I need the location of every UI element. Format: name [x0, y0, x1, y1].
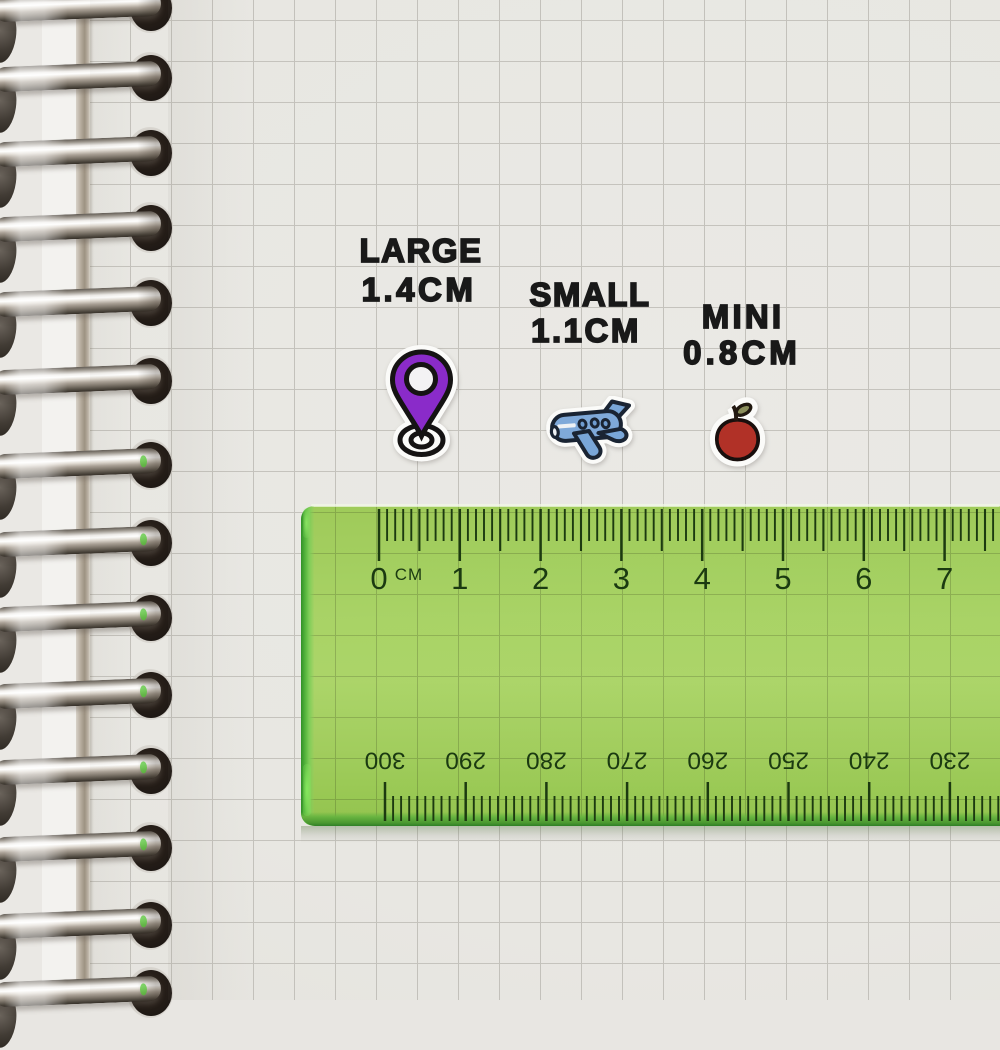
svg-text:1: 1 [451, 561, 468, 596]
svg-text:280: 280 [526, 747, 567, 774]
svg-text:4: 4 [694, 561, 711, 596]
svg-text:2: 2 [532, 561, 549, 596]
svg-text:250: 250 [768, 747, 809, 774]
svg-text:0: 0 [370, 561, 387, 596]
svg-text:300: 300 [365, 747, 406, 774]
svg-text:3: 3 [613, 561, 630, 596]
svg-text:7: 7 [936, 561, 953, 596]
svg-text:260: 260 [687, 747, 728, 774]
svg-text:240: 240 [849, 747, 890, 774]
svg-text:290: 290 [445, 747, 486, 774]
svg-text:230: 230 [929, 747, 970, 774]
svg-text:6: 6 [855, 561, 872, 596]
svg-text:5: 5 [774, 561, 791, 596]
svg-text:270: 270 [607, 747, 648, 774]
svg-text:CM: CM [395, 565, 423, 584]
